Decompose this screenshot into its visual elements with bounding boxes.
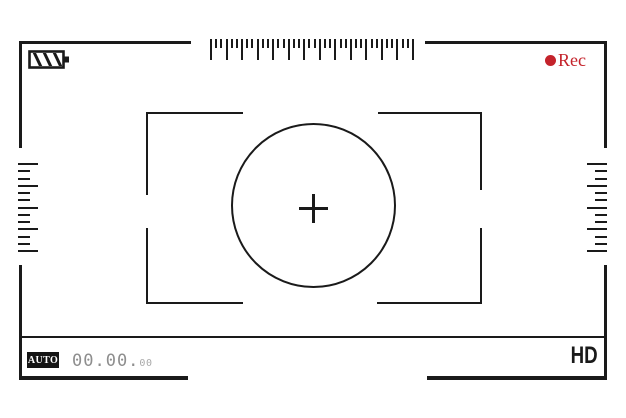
ruler-tick [386, 39, 388, 48]
focus-bracket-top-right-vertical [480, 112, 482, 190]
ruler-tick [293, 39, 295, 48]
rec-indicator: Rec [545, 51, 586, 69]
battery-icon [27, 49, 71, 70]
ruler-tick [381, 39, 383, 60]
ruler-tick [412, 39, 414, 60]
left-focus-ruler [18, 163, 38, 252]
ruler-tick [355, 39, 357, 48]
ruler-tick [314, 39, 316, 48]
auto-mode-badge: AUTO [27, 352, 59, 368]
ruler-tick [298, 39, 300, 48]
timer-frame-digits: 00 [139, 358, 152, 369]
info-bar-separator-line [21, 336, 604, 338]
ruler-tick [391, 39, 393, 48]
top-exposure-ruler [210, 39, 414, 60]
focus-bracket-top-right-horizontal [378, 112, 482, 114]
ruler-tick [251, 39, 253, 48]
frame-left-top-segment [19, 41, 22, 148]
ruler-tick [226, 39, 228, 60]
ruler-tick [595, 192, 607, 194]
ruler-tick [220, 39, 222, 48]
record-dot-icon [545, 55, 556, 66]
ruler-tick [18, 250, 38, 252]
ruler-tick [18, 185, 38, 187]
ruler-tick [324, 39, 326, 48]
ruler-tick [303, 39, 305, 60]
frame-right-bottom-segment [604, 265, 607, 380]
focus-bracket-top-left-vertical [146, 112, 148, 195]
ruler-tick [262, 39, 264, 48]
ruler-tick [340, 39, 342, 48]
frame-top-right-segment [425, 41, 607, 44]
ruler-tick [288, 39, 290, 60]
center-crosshair-icon [312, 194, 315, 223]
ruler-tick [267, 39, 269, 48]
ruler-tick [18, 192, 30, 194]
ruler-tick [283, 39, 285, 48]
ruler-tick [257, 39, 259, 60]
ruler-tick [587, 207, 607, 209]
ruler-tick [595, 243, 607, 245]
ruler-tick [18, 163, 38, 165]
focus-bracket-bottom-left-horizontal [146, 302, 243, 304]
focus-bracket-bottom-right-vertical [480, 228, 482, 304]
ruler-tick [595, 199, 607, 201]
ruler-tick [215, 39, 217, 48]
ruler-tick [350, 39, 352, 60]
ruler-tick [18, 236, 30, 238]
frame-left-bottom-segment [19, 265, 22, 380]
ruler-tick [376, 39, 378, 48]
ruler-tick [407, 39, 409, 48]
ruler-tick [587, 163, 607, 165]
hd-quality-label: HD [571, 344, 598, 368]
ruler-tick [329, 39, 331, 48]
ruler-tick [246, 39, 248, 48]
focus-bracket-top-left-horizontal [146, 112, 243, 114]
ruler-tick [18, 170, 30, 172]
frame-bottom-left-segment [19, 376, 188, 380]
ruler-tick [231, 39, 233, 48]
camera-viewfinder: Rec AUTO 00.00. 00 HD [0, 0, 626, 418]
ruler-tick [18, 214, 30, 216]
frame-top-left-segment [19, 41, 191, 44]
ruler-tick [587, 185, 607, 187]
ruler-tick [371, 39, 373, 48]
frame-bottom-right-segment [427, 376, 607, 380]
ruler-tick [319, 39, 321, 60]
right-focus-ruler [587, 163, 607, 252]
ruler-tick [595, 170, 607, 172]
ruler-tick [308, 39, 310, 48]
ruler-tick [241, 39, 243, 60]
frame-right-top-segment [604, 41, 607, 148]
ruler-tick [277, 39, 279, 48]
ruler-tick [595, 221, 607, 223]
ruler-tick [345, 39, 347, 48]
ruler-tick [272, 39, 274, 60]
ruler-tick [210, 39, 212, 60]
ruler-tick [236, 39, 238, 48]
rec-label: Rec [558, 51, 586, 69]
ruler-tick [587, 228, 607, 230]
ruler-tick [360, 39, 362, 48]
timer-main-digits: 00.00. [72, 351, 139, 371]
ruler-tick [595, 178, 607, 180]
ruler-tick [595, 214, 607, 216]
ruler-tick [18, 221, 30, 223]
ruler-tick [402, 39, 404, 48]
ruler-tick [18, 207, 38, 209]
ruler-tick [595, 236, 607, 238]
ruler-tick [18, 243, 30, 245]
ruler-tick [396, 39, 398, 60]
ruler-tick [18, 199, 30, 201]
focus-bracket-bottom-left-vertical [146, 228, 148, 304]
focus-bracket-bottom-right-horizontal [377, 302, 482, 304]
ruler-tick [18, 228, 38, 230]
ruler-tick [587, 250, 607, 252]
ruler-tick [18, 178, 30, 180]
ruler-tick [365, 39, 367, 60]
recording-timer: 00.00. 00 [72, 351, 152, 371]
ruler-tick [334, 39, 336, 60]
